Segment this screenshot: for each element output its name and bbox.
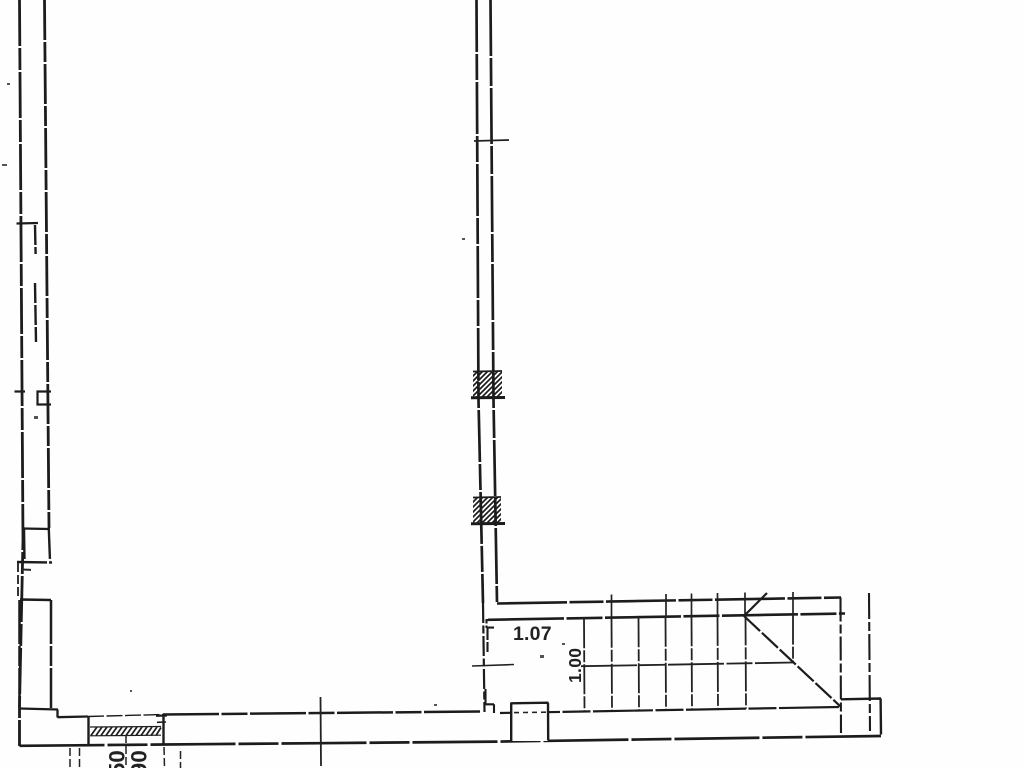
svg-text:1.07: 1.07 [513,623,552,645]
svg-text:0.90: 0.90 [127,750,152,768]
